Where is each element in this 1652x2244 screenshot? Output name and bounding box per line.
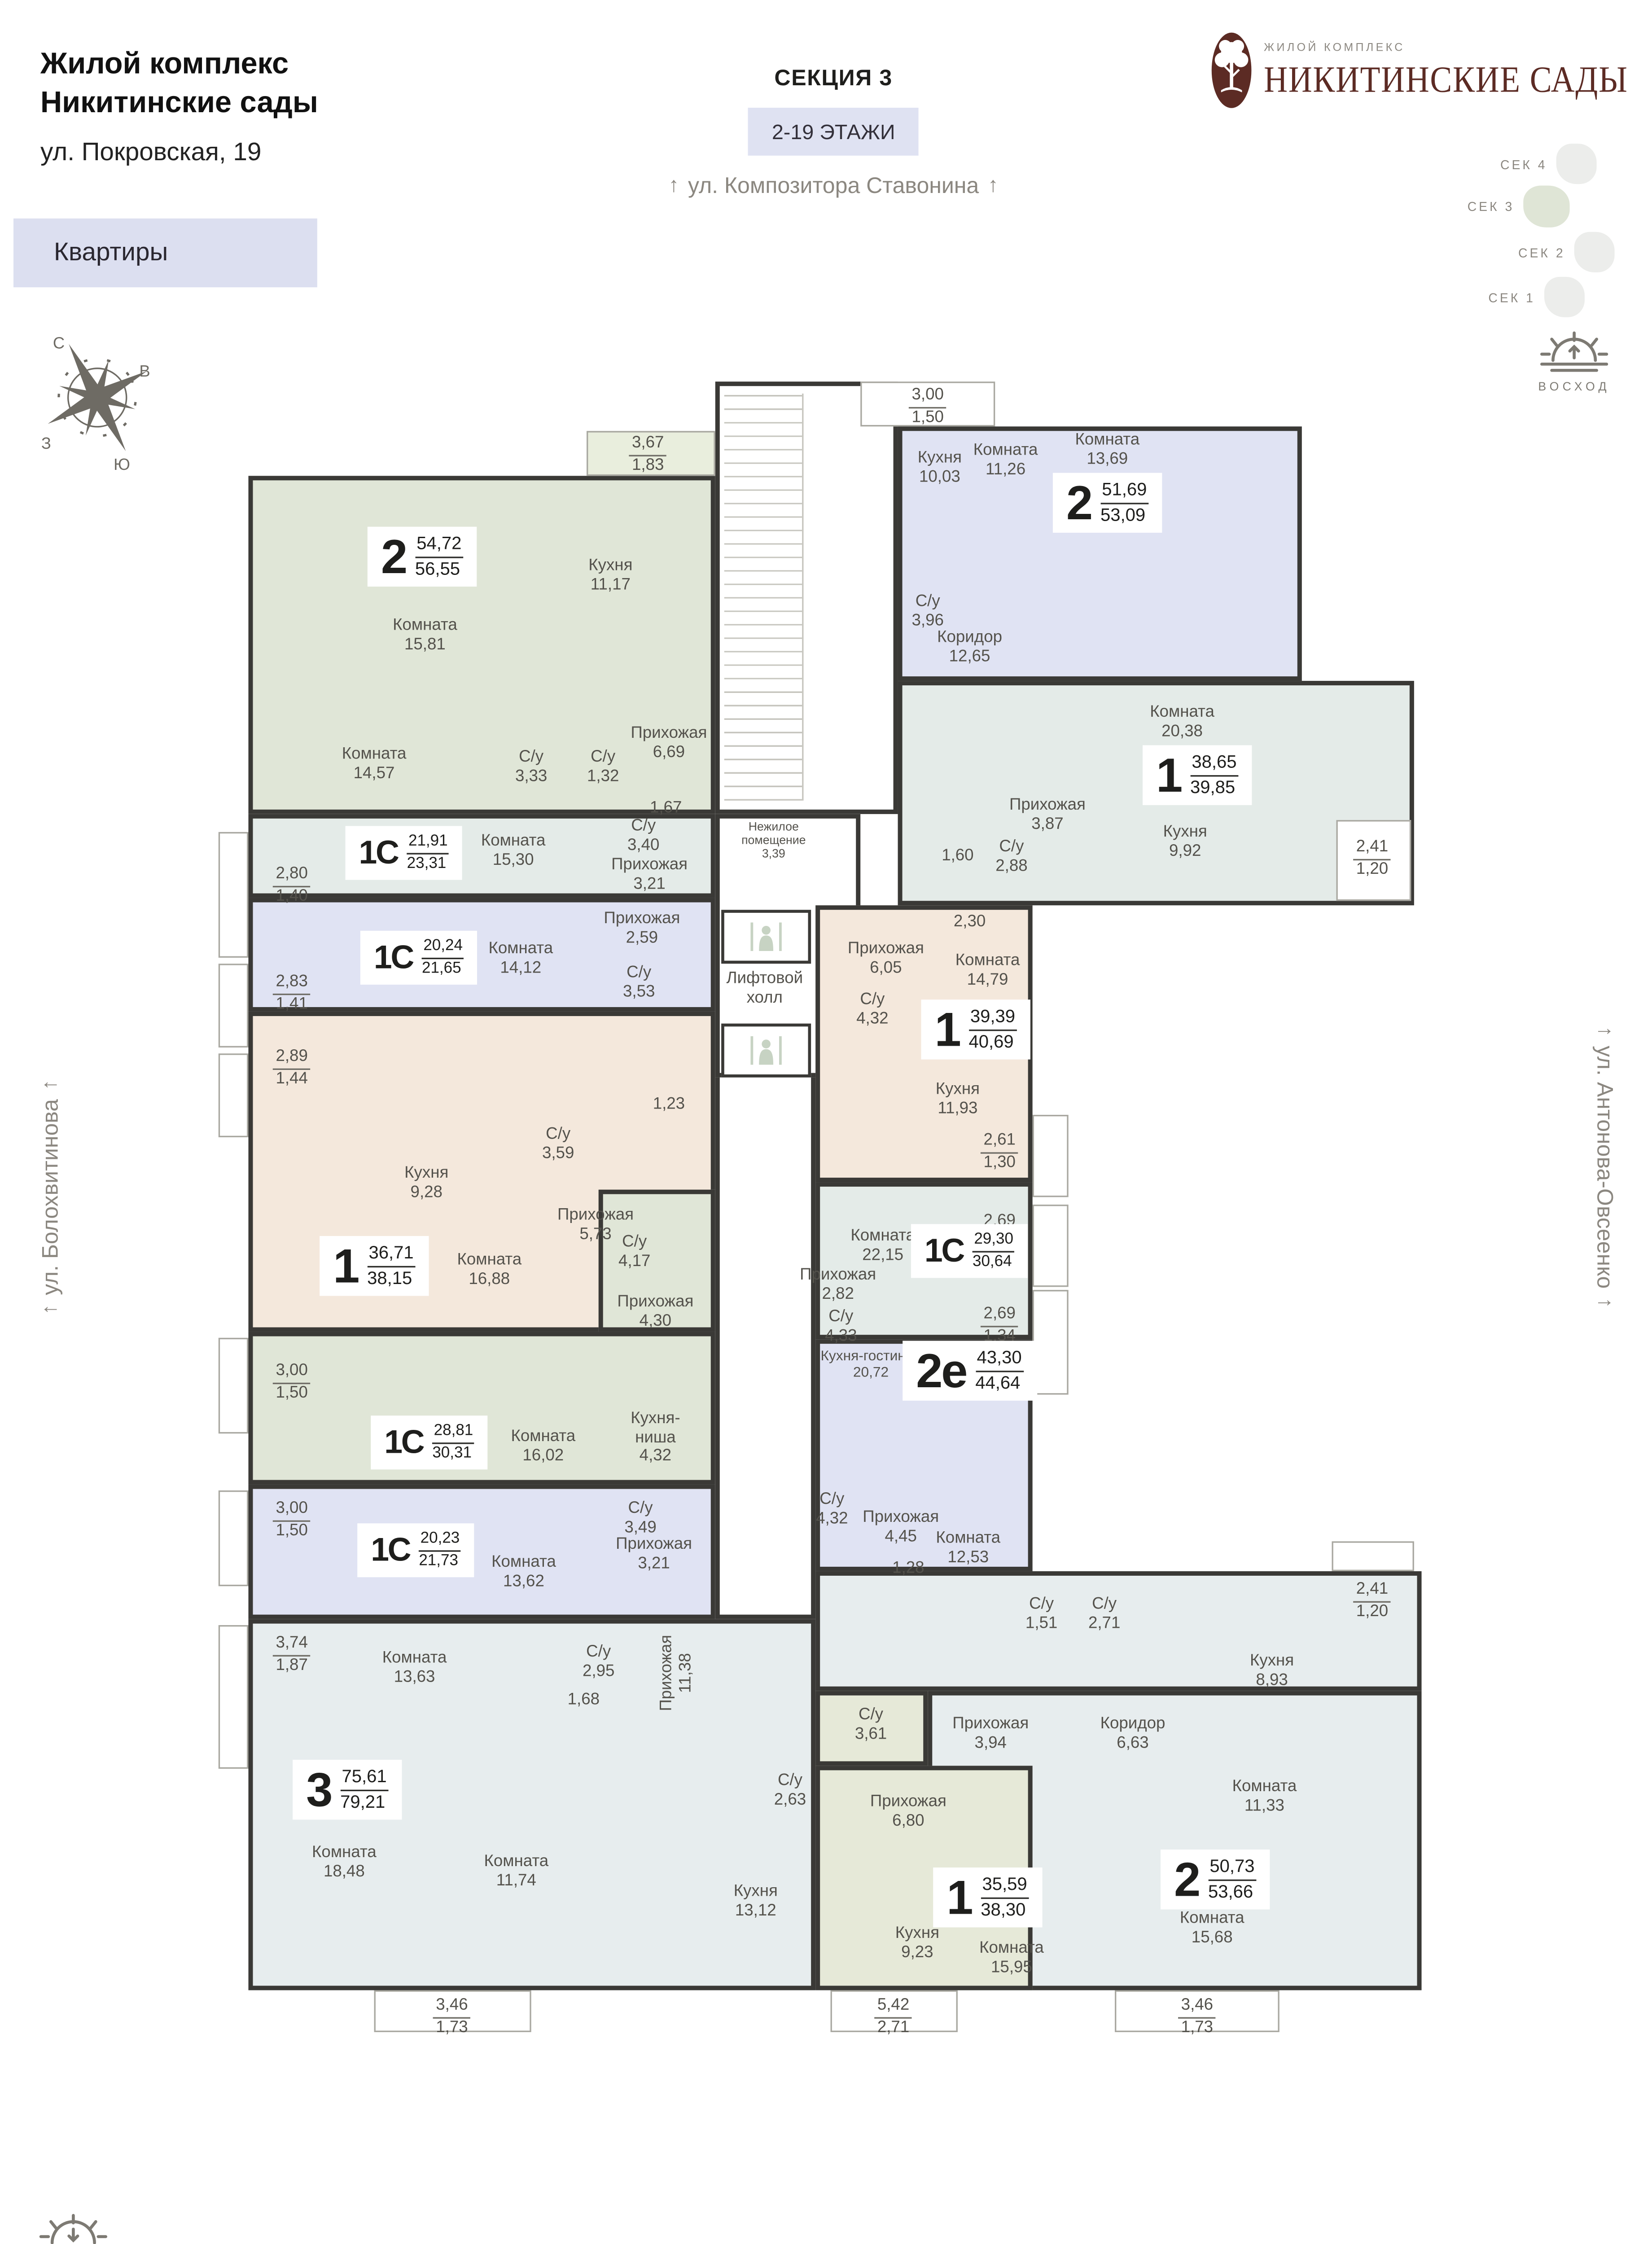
elevator-icon [721,910,811,964]
section-blob-сек-3[interactable] [1523,185,1569,227]
apartment-chip: 1С21,9123,31 [346,826,463,881]
arrow-up-icon: ↑ [660,172,688,196]
room-label: Кухня9,23 [895,1924,939,1962]
balcony [219,964,249,1047]
dimension-label: 3,461,73 [433,1996,471,2037]
room-label: Прихожая3,87 [1009,796,1086,834]
svg-text:Ю: Ю [114,455,130,473]
room-label: Прихожая4,45 [863,1508,939,1546]
dimension-label: 3,741,87 [273,1634,311,1674]
room-label: Кухня9,28 [404,1164,448,1202]
floors-badge: 2-19 ЭТАЖИ [748,108,919,156]
apartment-chip: 375,6179,21 [293,1760,402,1819]
apartment-chip: 1С20,2321,73 [357,1523,474,1578]
tree-logo-icon [1210,30,1252,111]
balcony [219,1490,249,1586]
room-label: Прихожая3,21 [611,856,688,894]
room-label: Комната15,95 [979,1939,1044,1977]
room-label: Комната11,26 [973,442,1038,479]
arrow-icon: ↑ [1595,1017,1618,1046]
apartment-chip: 136,7138,15 [320,1236,429,1296]
room-label: С/у2,71 [1088,1595,1120,1633]
dimension-label: 2,691,34 [981,1305,1019,1345]
apartment-chip: 138,6539,85 [1143,745,1252,805]
svg-text:В: В [139,362,150,380]
balcony [1033,1115,1069,1197]
room-label: Прихожая3,21 [616,1535,692,1573]
room-label: Комната13,62 [491,1553,556,1591]
room-label: Кухня13,12 [734,1882,778,1920]
room-label: Прихожая2,82 [800,1266,876,1304]
room-label: 2,30 [954,913,986,932]
room-label: 1,28 [892,1559,924,1578]
room-label: Комната13,63 [382,1649,447,1687]
arrow-icon: ↑ [1595,1289,1618,1317]
dimension-label: 3,001,50 [909,386,947,426]
room-label: Комната14,12 [488,940,553,977]
balcony [219,1625,249,1769]
room-label: С/у3,53 [623,964,655,1001]
room-label: Комната11,33 [1232,1778,1297,1815]
plan-block [248,476,715,814]
balcony [1033,1290,1069,1394]
room-label: Комната15,68 [1180,1909,1244,1947]
dimension-label: 5,422,71 [874,1996,912,2037]
room-label: Прихожая6,80 [870,1793,947,1830]
room-label: С/у3,49 [624,1499,656,1537]
svg-text:С: С [53,334,65,352]
room-label: С/у2,63 [774,1772,806,1810]
balcony [219,1053,249,1137]
room-label: 1,23 [653,1096,685,1114]
compass-rose-icon: С В З Ю [39,326,156,476]
room-label: С/у3,33 [515,748,547,786]
brand-logo: ЖИЛОЙ КОМПЛЕКС НИКИТИНСКИЕ САДЫ [1210,30,1628,111]
street-label-left: ↑ул. Болохвитинова↑ [38,1071,64,1324]
room-label: Комната16,88 [457,1251,521,1289]
arrow-up-icon: ↑ [979,172,1007,196]
section-title: СЕКЦИЯ 3 [774,66,893,92]
apartment-chip: 139,3940,69 [921,999,1030,1059]
section-item-сек-3[interactable]: СЕК 3 [1440,199,1515,214]
room-label: С/у2,95 [583,1643,614,1681]
arrow-icon: ↑ [37,1071,61,1099]
sunset-icon [36,2212,111,2244]
room-label: 1,68 [568,1691,600,1710]
room-label: Комната14,57 [342,745,407,783]
apartment-chip: 2е43,3044,64 [903,1341,1037,1400]
dimension-label: 2,801,40 [273,865,311,905]
room-label: Прихожая2,59 [604,910,680,947]
logo-name: НИКИТИНСКИЕ САДЫ [1264,58,1628,102]
section-item-сек-2[interactable]: СЕК 2 [1490,245,1565,259]
section-item-сек-1[interactable]: СЕК 1 [1460,289,1535,304]
room-label: 1,60 [942,847,973,866]
section-blob-сек-2[interactable] [1574,232,1615,272]
dimension-label: 3,001,50 [273,1499,311,1540]
room-label: С/у2,88 [995,838,1027,876]
room-label: Прихожая11,38 [657,1635,695,1711]
room-label: Комната16,02 [511,1428,576,1465]
apartment-chip: 254,7256,55 [368,527,477,587]
staircase [724,394,804,801]
flats-tab[interactable]: Квартиры [13,219,317,287]
room-label: Комната15,81 [393,617,457,654]
dimension-label: 3,461,73 [1178,1996,1216,2037]
room-label: Лифтовойхолл [726,970,803,1008]
room-label: С/у3,59 [542,1125,574,1163]
dimension-label: 2,611,30 [981,1131,1019,1172]
room-label: Кухня8,93 [1250,1652,1294,1690]
room-label: С/у3,61 [855,1706,887,1744]
room-label: С/у4,32 [816,1490,848,1528]
address: ул. Покровская, 19 [40,138,261,168]
room-label: Прихожая6,05 [848,940,924,977]
apartment-chip: 250,7353,66 [1161,1850,1270,1909]
room-label: Комната14,79 [955,952,1020,990]
dimension-label: 2,891,44 [273,1047,311,1088]
street-label-top: ↑ул. Композитора Ставонина↑ [660,174,1008,199]
apartment-chip: 251,6953,09 [1053,473,1162,533]
dimension-label: 2,831,41 [273,973,311,1013]
balcony [219,1338,249,1433]
section-blob-сек-4[interactable] [1556,144,1597,184]
room-label: С/у4,17 [618,1233,650,1271]
room-label: Кухня9,92 [1163,823,1207,861]
room-label: Кухня-ниша4,32 [631,1410,680,1466]
section-item-сек-4[interactable]: СЕК 4 [1472,156,1547,171]
section-blob-сек-1[interactable] [1544,277,1585,317]
room-label: Комната12,53 [936,1530,1000,1567]
room-label: Кухня11,93 [936,1080,980,1118]
street-label-right: ↑ул. Антонова-Овсеенко↑ [1591,1017,1617,1317]
dimension-label: 3,671,83 [629,434,667,474]
balcony [1332,1541,1414,1571]
page-title: Жилой комплексНикитинские сады [40,45,318,124]
page: Жилой комплексНикитинские сады ул. Покро… [0,0,1652,2244]
apartment-chip: 1С20,2421,65 [360,931,478,985]
room-label: Прихожая4,30 [617,1293,693,1331]
balcony [1033,1205,1069,1287]
room-label: Кухня10,03 [918,449,962,486]
room-label: 1,67 [650,799,682,818]
room-label: Коридор6,63 [1100,1715,1166,1753]
room-label: С/у3,96 [912,592,944,630]
apartment-chip: 135,5938,30 [933,1867,1042,1927]
sunrise-icon [1537,329,1612,374]
room-label: Прихожая3,94 [952,1715,1029,1753]
room-label: Коридор12,65 [937,628,1002,666]
apartment-chip: 1С29,3030,64 [911,1224,1028,1278]
room-label: Комната20,38 [1150,703,1214,741]
room-label: Кухня11,17 [588,557,632,594]
elevator-icon [721,1024,811,1078]
room-label: Комната15,30 [481,832,546,870]
arrow-icon: ↑ [37,1295,61,1324]
room-label: Нежилоепомещение3,39 [741,820,806,861]
dimension-label: 2,411,20 [1353,838,1391,878]
room-label: С/у1,32 [587,748,619,786]
svg-text:З: З [41,434,51,452]
dimension-label: 3,001,50 [273,1362,311,1402]
sunrise-label: ВОСХОД [1538,380,1610,394]
room-label: С/у3,40 [627,817,659,855]
room-label: Прихожая6,69 [631,724,707,762]
room-label: Комната22,15 [850,1227,915,1265]
room-label: Комната18,48 [312,1844,377,1881]
room-label: Комната13,69 [1075,431,1140,469]
room-label: С/у4,33 [825,1308,857,1346]
room-label: С/у4,32 [856,991,888,1028]
balcony [219,832,249,958]
room-label: Комната11,74 [484,1853,548,1890]
room-label: С/у1,51 [1025,1595,1057,1633]
logo-subtitle: ЖИЛОЙ КОМПЛЕКС [1264,40,1628,54]
dimension-label: 2,411,20 [1353,1580,1391,1621]
apartment-chip: 1С28,8130,31 [371,1416,488,1470]
